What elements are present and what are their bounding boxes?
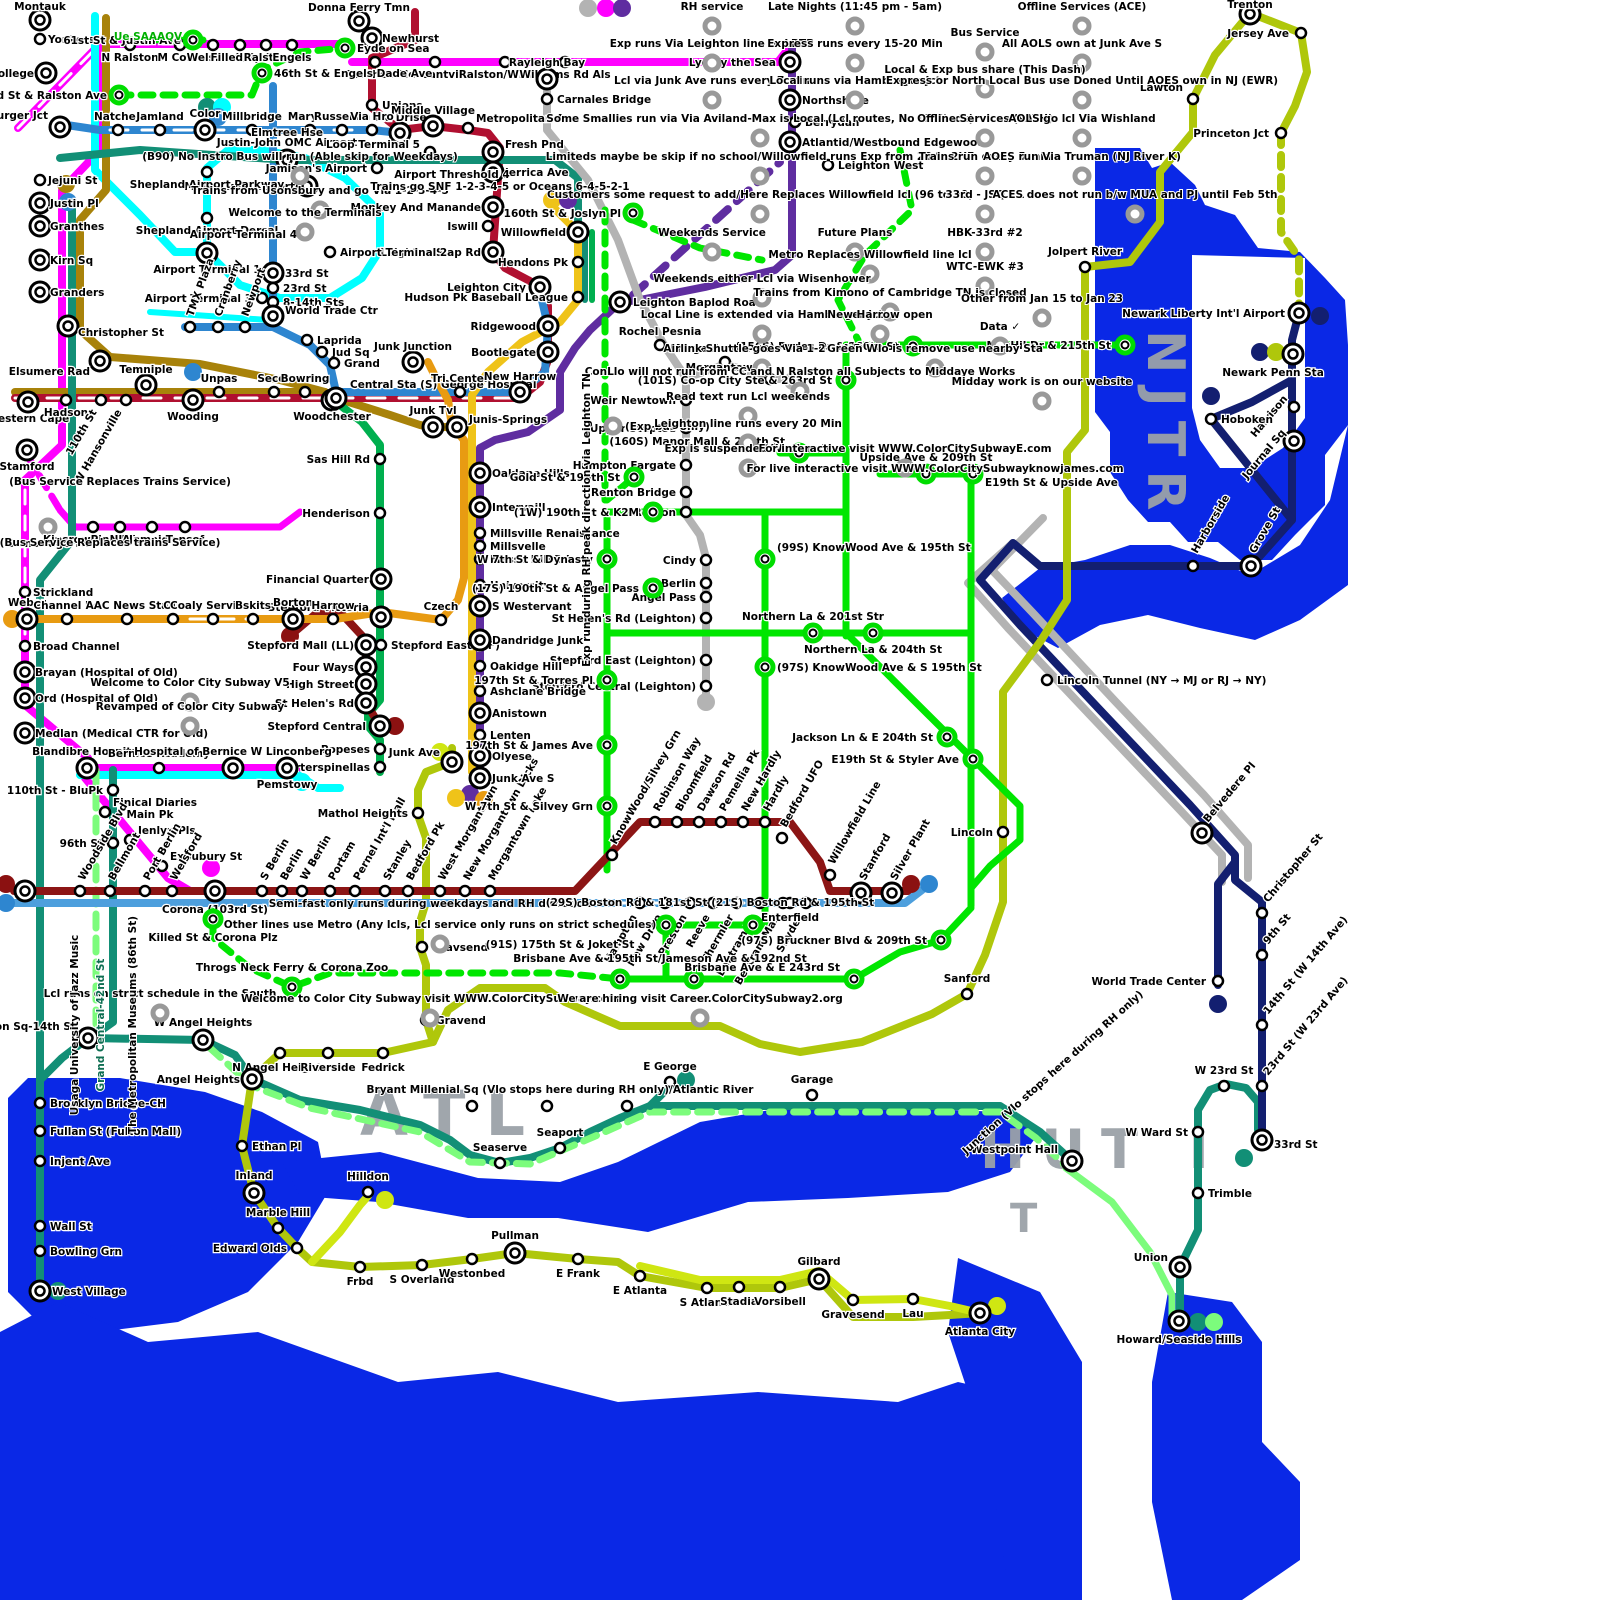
station-interchange-ring (574, 228, 583, 237)
station-interchange-ring (476, 602, 485, 611)
station-local (237, 1141, 247, 1151)
service-note-marker (1035, 394, 1049, 408)
service-note: Bryant Millenial Sq (Vlo stops here duri… (367, 1084, 755, 1096)
service-note-marker (705, 19, 719, 33)
service-note-marker (753, 131, 767, 145)
station-local (417, 1260, 427, 1270)
service-note: Leighton line runs every 20 Min (654, 418, 842, 430)
station-interchange-ring (476, 752, 485, 761)
bus-stop-core (650, 585, 657, 592)
station-label: Hadson (44, 407, 88, 419)
station-interchange-ring (21, 887, 30, 896)
bus-stop-core (210, 916, 217, 923)
station-label: Hamburger Jct (0, 110, 48, 122)
station-label: Newark Penn Sta (1222, 367, 1324, 379)
station-interchange-ring (248, 1075, 257, 1084)
station-label: 110th St - BluPk (7, 785, 104, 797)
station-local (701, 555, 711, 565)
station-label: 160th St & Joslyn Pl (504, 208, 621, 220)
station-local (180, 522, 190, 532)
station-label: Leighton Baplod Road (633, 297, 763, 309)
station-label: Atlantid/Westbound Edgewood (802, 137, 985, 149)
station-local (300, 387, 310, 397)
service-note: Revamped of Color City Subway (96, 701, 285, 713)
station-local (325, 247, 335, 257)
station-interchange-ring (21, 694, 30, 703)
station-interchange-ring (362, 680, 371, 689)
terminal-dot (1189, 1313, 1207, 1331)
station-local (475, 661, 485, 671)
station-label: Rochel Pesnia (619, 326, 702, 338)
station-local (573, 292, 583, 302)
station-interchange-ring (362, 641, 371, 650)
station-local (202, 167, 212, 177)
station-label: Jersey Ave (1226, 28, 1289, 40)
station-local (998, 827, 1008, 837)
service-note-marker (705, 245, 719, 259)
station-label: 46th St & Engels Dade Ave (274, 68, 432, 80)
bus-stop-core (604, 742, 611, 749)
station-local (672, 817, 682, 827)
station-interchange-ring (189, 396, 198, 405)
station-label: Wooding (167, 411, 219, 423)
station-label: Brooklyn Bridge-CH (50, 1098, 166, 1110)
station-label: Gilbard (797, 1256, 840, 1268)
station-local (681, 507, 691, 517)
station-local (681, 460, 691, 470)
station-local (475, 730, 485, 740)
station-label: Junis-Springs (468, 414, 547, 426)
station-local (495, 1158, 505, 1168)
station-label: Ethan Pl (252, 1141, 301, 1153)
legend-stop (606, 419, 620, 433)
station-local (35, 1246, 45, 1256)
service-note-marker (705, 93, 719, 107)
water-label: T (1010, 1196, 1038, 1242)
station-label: Marble Hill (246, 1207, 310, 1219)
station-label: Riverside (300, 1062, 355, 1074)
station-interchange-ring (786, 58, 795, 67)
station-label: Hendons Pk (498, 257, 569, 269)
bus-stop-core (762, 664, 769, 671)
station-local (367, 100, 377, 110)
service-note: Exp run during RH peak direction via Lei… (581, 373, 593, 667)
station-label: Fedrick (361, 1062, 405, 1074)
station-interchange-ring (786, 96, 795, 105)
service-note: Express or North Local Bus use Doned Unt… (886, 75, 1278, 87)
station-interchange-ring (362, 663, 371, 672)
station-label: West Village (52, 1286, 126, 1298)
station-label: Frbd (347, 1276, 374, 1288)
station-label: Northern La & 201st Str (742, 611, 885, 623)
station-local (113, 125, 123, 135)
station-label: Union Sq-14th St (0, 1021, 76, 1033)
station-label: Bowring (281, 373, 330, 385)
station-interchange-ring (42, 69, 51, 78)
station-interchange-ring (289, 615, 298, 624)
station-local (542, 94, 552, 104)
station-interchange-ring (96, 357, 105, 366)
station-local (460, 886, 470, 896)
service-note-marker (153, 1006, 167, 1020)
service-note-marker (848, 93, 862, 107)
station-local (214, 387, 224, 397)
service-note-marker (1128, 207, 1142, 221)
station-local (20, 641, 30, 651)
station-interchange-ring (377, 575, 386, 584)
station-local (403, 886, 413, 896)
station-local (269, 387, 279, 397)
station-local (213, 322, 223, 332)
service-note-marker (705, 56, 719, 70)
station-local (370, 57, 380, 67)
station-label: Montauk (14, 1, 67, 13)
station-local (268, 283, 278, 293)
station-label: Middle Village (391, 105, 475, 117)
station-interchange-ring (36, 222, 45, 231)
station-local (35, 175, 45, 185)
service-note-marker (1075, 131, 1089, 145)
station-interchange-ring (453, 423, 462, 432)
station-label: Anistown (492, 708, 547, 720)
station-local (121, 395, 131, 405)
service-note: Green Wlo is remove use nearby Sta (827, 343, 1043, 355)
station-local (287, 40, 297, 50)
service-note-marker (1075, 169, 1089, 183)
station-interchange-ring (476, 774, 485, 783)
station-local (337, 125, 347, 135)
service-note: Offline Services (ACE) (1018, 1, 1147, 13)
station-label: S Westervant (492, 601, 572, 613)
service-note-marker (1035, 311, 1049, 325)
terminal-dot (579, 0, 597, 17)
transit-line-yg-city (242, 748, 980, 1317)
service-note-marker (755, 327, 769, 341)
station-interchange-ring (888, 889, 897, 898)
terminal-dot (376, 1191, 394, 1209)
station-interchange-ring (21, 668, 30, 677)
bus-stop-core (190, 37, 197, 44)
station-local (417, 942, 427, 952)
station-local (1193, 1127, 1203, 1137)
station-label: Stepford Central (267, 721, 366, 733)
station-interchange-ring (476, 709, 485, 718)
station-label: N Ralston (101, 52, 158, 64)
station-interchange-ring (1289, 350, 1298, 359)
station-interchange-ring (211, 887, 220, 896)
station-local (483, 221, 493, 231)
station-local (760, 817, 770, 827)
station-interchange-ring (269, 312, 278, 321)
station-local (202, 213, 212, 223)
station-local (555, 1143, 565, 1153)
service-note: Express runs every 15-20 Min (767, 38, 942, 50)
station-local (363, 1187, 373, 1197)
station-label: E Atlanta (613, 1285, 667, 1297)
station-label: Dandridge Junk (492, 635, 584, 647)
service-note-marker (693, 1011, 707, 1025)
bus-stop-core (944, 734, 951, 741)
station-local (275, 1048, 285, 1058)
station-label: Christopher St (1261, 831, 1325, 905)
station-local (1219, 1081, 1229, 1091)
station-interchange-ring (36, 199, 45, 208)
station-label: Renton Bridge (591, 487, 676, 499)
station-interchange-ring (21, 729, 30, 738)
station-label: Iswill (447, 221, 478, 233)
station-label: AAC News Sta (86, 600, 169, 612)
station-label: Stanford (857, 832, 893, 883)
station-label: Gold St & 190th St (510, 472, 620, 484)
station-label: Hospital of Bernice W Linconberg (134, 746, 332, 758)
station-local (463, 123, 473, 133)
terminal-dot (697, 693, 715, 711)
station-label: Elsumere Rad (9, 366, 90, 378)
station-local (702, 1283, 712, 1293)
station-local (701, 578, 711, 588)
station-local (372, 163, 382, 173)
bus-stop-core (604, 556, 611, 563)
station-interchange-ring (544, 348, 553, 357)
station-local (681, 487, 691, 497)
station-label: Justin Pl (49, 198, 99, 210)
station-interchange-ring (64, 322, 73, 331)
station-label: Borton (273, 597, 313, 609)
service-note-marker (298, 225, 312, 239)
terminal-dot (184, 363, 202, 381)
station-interchange-ring (36, 256, 45, 265)
station-label: 33rd St (285, 268, 329, 280)
terminal-dot (597, 0, 615, 17)
station-label: E19th St & Upside Ave (985, 477, 1118, 489)
station-local (1257, 1081, 1267, 1091)
service-note-marker (873, 327, 887, 341)
station-label: Weir Newtown (590, 395, 676, 407)
station-label: Bootlegate (471, 347, 536, 359)
station-interchange-ring (36, 1287, 45, 1296)
station-label: Junk Ave (388, 747, 440, 759)
terminal-dot (920, 875, 938, 893)
station-label: Angel Heights (157, 1074, 240, 1086)
service-note-marker (423, 1011, 437, 1025)
station-local (155, 125, 165, 135)
station-label: Donna Ferry Tmn (308, 2, 410, 14)
service-note-marker (848, 19, 862, 33)
station-local (147, 522, 157, 532)
station-interchange-ring (250, 1189, 259, 1198)
station-label: Jamland (135, 111, 184, 123)
station-label: Engels (272, 52, 311, 64)
station-label: Williams Rd Als (519, 69, 610, 81)
station-label: Junk Tvl (408, 405, 456, 417)
station-local (436, 615, 446, 625)
station-label: 23rd St (283, 283, 327, 295)
bus-stop-core (870, 630, 877, 637)
bus-stop-core (604, 677, 611, 684)
station-local (257, 886, 267, 896)
station-local (167, 886, 177, 896)
station-label: Stepford East (Leighton) (550, 655, 696, 667)
service-note: (Bus Service Replaces Trains Service) (9, 476, 231, 488)
station-local (375, 454, 385, 464)
station-label: High Street (286, 679, 354, 691)
bus-stop-core (938, 937, 945, 944)
station-local (35, 34, 45, 44)
bus-stop-core (116, 92, 123, 99)
service-note-marker (978, 45, 992, 59)
station-label: Lincoln (951, 827, 993, 839)
station-label: W 23rd St (1195, 1065, 1254, 1077)
station-label: Enterfield (761, 912, 819, 924)
station-label: Jerrica Ave (504, 167, 569, 179)
service-note: Weekends either Lcl via Wisenhower (653, 273, 871, 285)
station-local (297, 886, 307, 896)
station-label: Gravend (436, 1015, 486, 1027)
station-local (542, 1101, 552, 1111)
station-interchange-ring (199, 1036, 208, 1045)
station-local (1276, 128, 1286, 138)
station-interchange-ring (283, 764, 292, 773)
station-local (573, 257, 583, 267)
service-note: (B90) No Instro Bus will run (Able skip … (142, 151, 458, 163)
station-local (777, 833, 787, 843)
service-note: Weekends Service (658, 227, 766, 239)
station-label: Christopher St (78, 327, 164, 339)
station-local (701, 655, 711, 665)
station-local (738, 817, 748, 827)
station-local (455, 387, 465, 397)
station-local (716, 817, 726, 827)
station-interchange-ring (1176, 1263, 1185, 1272)
bus-stop-core (342, 45, 349, 52)
station-label: Edward Olds (213, 1243, 287, 1255)
service-note: Welcome to Color City Subway V5 (90, 677, 289, 689)
station-label: Willowfield (501, 227, 566, 239)
station-label: 197th St & James Ave (465, 740, 593, 752)
station-label: Injent Ave (50, 1156, 110, 1168)
station-local (375, 508, 385, 518)
station-label: Garage (791, 1074, 834, 1086)
service-note: The Metropolitan Museums (86th St) (127, 916, 139, 1134)
service-note: All AOLS own at Junk Ave S (1002, 38, 1162, 50)
station-local (96, 395, 106, 405)
station-local (775, 1282, 785, 1292)
service-note: WTC-EWK #3 (946, 261, 1024, 273)
station-local (61, 395, 71, 405)
service-note: RH service (681, 1, 744, 13)
station-interchange-ring (56, 123, 65, 132)
service-note-marker (753, 169, 767, 183)
station-local (1080, 262, 1090, 272)
station-label: Oakidge Hill (490, 661, 562, 673)
station-local (35, 1098, 45, 1108)
station-local (75, 886, 85, 896)
station-interchange-ring (511, 1249, 520, 1258)
service-note: AOES run Via Truman (NJ River K) (983, 151, 1181, 163)
station-label: 197th St & Torres Pl (474, 675, 593, 687)
bus-stop-core (762, 556, 769, 563)
station-label: Color (190, 108, 222, 120)
station-local (277, 886, 287, 896)
station-interchange-ring (36, 16, 45, 25)
station-label: Millsvelle (490, 541, 546, 553)
station-local (154, 763, 164, 773)
station-label: Hudson Pk Baseball League (404, 292, 568, 304)
station-interchange-ring (84, 1034, 93, 1043)
station-label: Pullman (491, 1230, 539, 1242)
bus-stop-core (259, 70, 266, 77)
station-local (302, 335, 312, 345)
station-label: W Ward St (1126, 1127, 1188, 1139)
station-label: Junk Ave S (491, 773, 554, 785)
station-label: W 7th St & Silvey Grn (465, 801, 593, 813)
station-label: Hoboken (1221, 414, 1273, 426)
station-local (1188, 94, 1198, 104)
station-interchange-ring (476, 469, 485, 478)
station-interchange-ring (1068, 1157, 1077, 1166)
station-local (1257, 950, 1267, 960)
station-label: Killed St & Corona Plz (148, 932, 277, 944)
bus-stop-core (970, 756, 977, 763)
station-label: Lau (902, 1308, 923, 1320)
service-note: Future Plans (818, 227, 893, 239)
station-local (573, 1254, 583, 1264)
service-note: Airport Threshold 4 (394, 169, 509, 181)
terminal-dot (1205, 1313, 1223, 1331)
station-local (430, 57, 440, 67)
station-label: St Helen's Rd (275, 698, 354, 710)
station-label: Lye By the Sea (689, 57, 776, 69)
station-interchange-ring (203, 249, 212, 258)
station-label: Jejuni St (47, 175, 97, 187)
service-note: Other lines use Metro (Any lcls, Lcl ser… (224, 919, 657, 931)
station-local (701, 681, 711, 691)
station-interchange-ring (543, 75, 552, 84)
service-note: Some Smallies run via Via Aviland-Max is… (546, 113, 973, 125)
station-local (273, 1223, 283, 1233)
station-label: Rayleigh Bay (509, 57, 585, 69)
station-interchange-ring (368, 34, 377, 43)
service-note-marker (753, 207, 767, 221)
service-note: ACES does not run b/w MUA and PJ until F… (993, 189, 1278, 201)
service-note: Welcome to the Terminals (228, 207, 381, 219)
station-local (248, 614, 258, 624)
station-label: Kirn Sq (50, 255, 93, 267)
station-local (1289, 402, 1299, 412)
station-local (208, 614, 218, 624)
station-label: Bedford UFO (778, 758, 826, 829)
station-label: Trimble (1208, 1188, 1252, 1200)
bus-stop-core (810, 630, 817, 637)
service-note: Read text run Lcl weekends (666, 391, 830, 403)
service-note: We are hiring visit Career.ColorCitySubw… (557, 993, 843, 1005)
station-local (185, 322, 195, 332)
station-label: City College (0, 68, 34, 80)
station-label: Fresh Pnd (505, 139, 564, 151)
station-interchange-ring (24, 398, 33, 407)
bus-stop-core (604, 803, 611, 810)
station-local (650, 817, 660, 827)
service-note: Limiteds maybe be skip if no school/Will… (546, 151, 975, 163)
station-local (35, 1221, 45, 1231)
bus-stop-core (630, 210, 637, 217)
station-local (1206, 414, 1216, 424)
station-label: W Angel Heights (154, 1017, 253, 1029)
station-local (115, 522, 125, 532)
station-interchange-ring (377, 613, 386, 622)
terminal-dot (1251, 343, 1269, 361)
service-note: AOLS go lcl Via Wishland (1008, 113, 1155, 125)
